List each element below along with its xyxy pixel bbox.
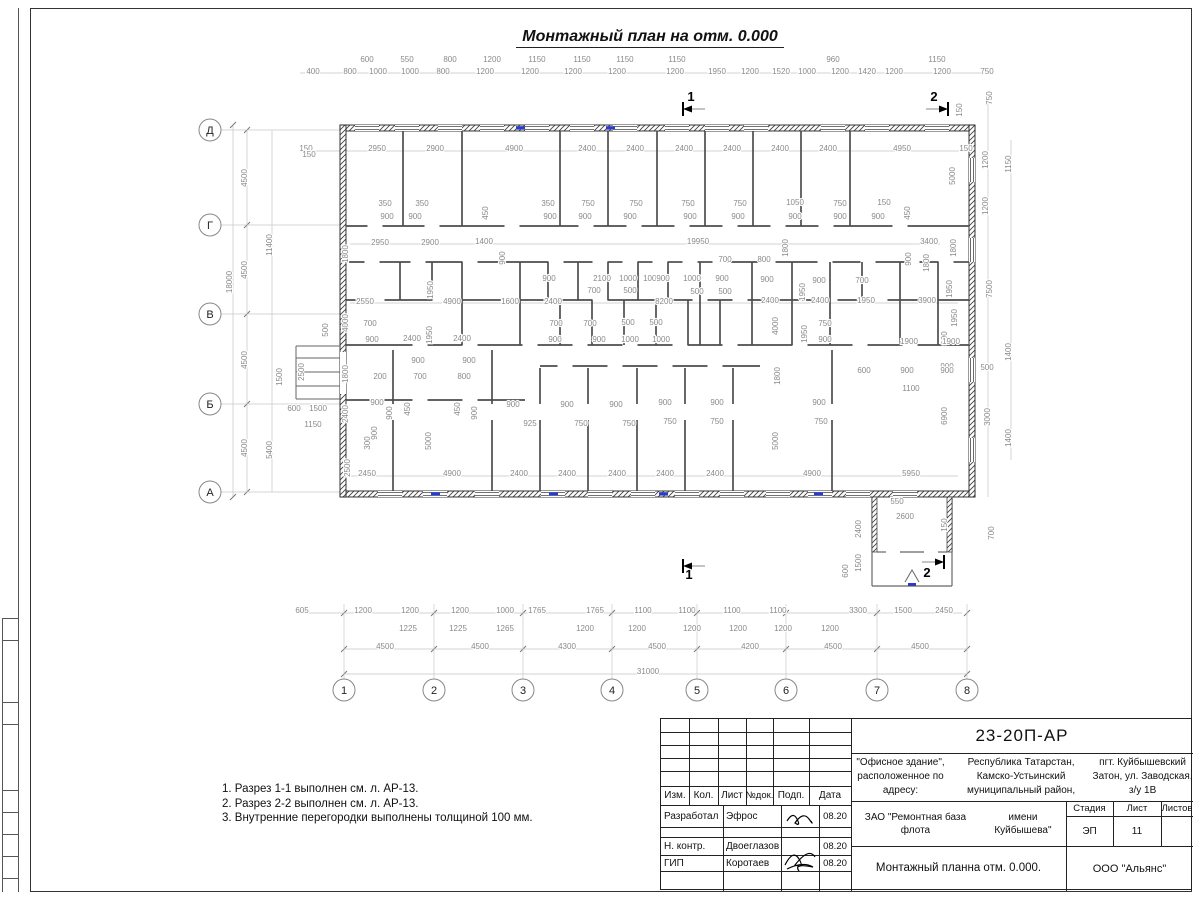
dim-label: 4900 [803,469,821,478]
dim-label: 800 [443,55,457,64]
dim-label: 1900 [900,337,918,346]
dim-label: 1765 [528,606,546,615]
axis-label: 6 [783,685,789,697]
dim-label: 3000 [983,408,992,426]
dim-label: 1800 [341,245,350,263]
dim-label: 900 [760,275,774,284]
axis-label: 1 [341,685,347,697]
dim-label: 900 [542,274,556,283]
dim-label: 2400 [453,334,471,343]
dim-label: 11400 [265,234,274,256]
section-mark-label: 1 [685,567,692,582]
dim-label: 750 [581,199,595,208]
section-mark-label: 1 [687,89,694,104]
dim-label: 1200 [933,67,951,76]
dim-label: 5000 [948,167,957,185]
dim-label: 1200 [729,624,747,633]
dim-label: 1150 [928,55,946,64]
notes: 1. Разрез 1-1 выполнен см. л. АР-13.2. Р… [222,782,533,826]
dim-label: 1800 [341,365,350,383]
dim-label: 4200 [741,642,759,651]
dim-label: 1000 [496,606,514,615]
dim-label: 900 [411,356,425,365]
axis-label: Д [206,125,214,137]
dim-label: 900 [683,212,697,221]
dim-label: 450 [403,402,412,416]
tb-col-0: Изм. [661,786,689,805]
dim-label: 2450 [358,469,376,478]
dim-label: 605 [295,606,309,615]
axis-label: А [206,487,214,499]
dim-label: 900 [658,398,672,407]
dim-label: 5000 [771,432,780,450]
dim-label: 4300 [558,642,576,651]
tb-sheets-label: Листов [1161,801,1193,816]
tb-role-1: Н. контр. [661,837,726,855]
dim-label: 200 [373,372,387,381]
dim-label: 1200 [451,606,469,615]
dim-label: 150 [955,103,964,117]
dim-label: 4500 [240,439,249,457]
dim-label: 2400 [656,469,674,478]
dim-label: 450 [903,206,912,220]
dim-label: 750 [681,199,695,208]
dim-label: 1900 [942,337,960,346]
dim-label: 2600 [896,512,914,521]
dim-label: 5950 [902,469,920,478]
dim-label: 350 [415,199,429,208]
dim-label: 1950 [426,281,435,299]
dim-label: 900 [560,400,574,409]
axis-label: 2 [431,685,437,697]
dim-label: 2400 [675,144,693,153]
dim-label: 19950 [687,237,710,246]
tb-role-0: Разработал [661,805,726,827]
dim-label: 5400 [265,441,274,459]
dim-label: 900 [578,212,592,221]
dim-label: 500 [980,363,994,372]
dim-label: 1050 [786,198,804,207]
dim-label: 4500 [911,642,929,651]
dim-label: 6900 [940,407,949,425]
dim-label: 700 [363,319,377,328]
dim-label: 1100 [634,606,652,615]
dim-label: 800 [343,67,357,76]
dim-label: 1500 [309,404,327,413]
dim-label: 1100 [902,384,920,393]
dim-label: 2400 [626,144,644,153]
dim-label: 150 [959,144,973,153]
dim-label: 2400 [854,520,863,538]
tb-date-2: 08.20 [819,855,851,871]
dim-label: 1200 [354,606,372,615]
dim-label: 1500 [894,606,912,615]
dim-label: 1100 [769,606,787,615]
dim-label: 1150 [1004,155,1013,173]
tb-sheet-value: 11 [1113,816,1161,846]
dim-label: 500 [621,318,635,327]
titleblock-line [661,827,851,828]
dim-label: 1950 [950,309,959,327]
dim-label: 1200 [981,197,990,215]
axis-label: 3 [520,685,526,697]
dim-label: 2400 [558,469,576,478]
dim-label: 1200 [683,624,701,633]
dim-label: 700 [549,319,563,328]
dim-label: 900 [623,212,637,221]
dim-label: 900 [833,212,847,221]
dim-label: 1150 [668,55,686,64]
dim-label: 1800 [781,239,790,257]
dim-label: 700 [855,276,869,285]
dim-label: 750 [833,199,847,208]
dim-label: 2400 [403,334,421,343]
dim-label: 900 [818,335,832,344]
dim-label: 1200 [576,624,594,633]
dim-label: 1200 [521,67,539,76]
dim-label: 2400 [706,469,724,478]
dim-label: 900 [365,335,379,344]
dim-label: 350 [541,199,555,208]
note-line: 1. Разрез 1-1 выполнен см. л. АР-13. [222,782,533,797]
dim-label: 1100 [678,606,696,615]
section-mark-label: 2 [930,89,937,104]
dim-label: 600 [360,55,374,64]
note-line: 2. Разрез 2-2 выполнен см. л. АР-13. [222,797,533,812]
dim-label: 4500 [471,642,489,651]
dim-label: 1950 [425,326,434,344]
tb-name-2: Коротаев [723,855,784,871]
dim-label: 900 [812,276,826,285]
dim-label: 2550 [356,297,374,306]
dim-label: 1000 [652,335,670,344]
dim-label: 700 [583,319,597,328]
dim-label: 960 [826,55,840,64]
dim-label: 800 [436,67,450,76]
dim-label: 1150 [616,55,634,64]
dim-label: 600 [857,366,871,375]
dim-label: 150 [940,518,949,532]
dim-label: 1000 [619,274,637,283]
dim-label: 4900 [443,297,461,306]
dim-label: 2400 [544,297,562,306]
dim-label: 600 [287,404,301,413]
tb-company: ООО "Альянс" [1066,846,1193,891]
dim-label: 800 [757,255,771,264]
dim-label: 750 [574,419,588,428]
axis-label: Г [207,220,213,232]
dim-label: 2900 [426,144,444,153]
dim-label: 450 [453,402,462,416]
dim-label: 900 [904,252,913,266]
dim-label: 500 [623,286,637,295]
dim-label: 4500 [240,169,249,187]
dim-label: 1200 [831,67,849,76]
dim-label: 900 [506,400,520,409]
dim-label: 900 [470,406,479,420]
section-mark-label: 2 [923,565,930,580]
tb-stage-value: ЭП [1066,816,1113,846]
dim-label: 500 [718,287,732,296]
dim-label: 1200 [741,67,759,76]
dim-label: 2400 [819,144,837,153]
dim-label: 1950 [945,280,954,298]
dim-label: 150 [877,198,891,207]
tb-drawing-name: Монтажный планна отм. 0.000. [851,846,1066,891]
dim-label: 2500 [297,363,306,381]
dim-label: 350 [378,199,392,208]
axis-label: 7 [874,685,880,697]
dim-label: 1950 [798,283,807,301]
dim-label: 2450 [935,606,953,615]
tb-doc: 23-20П-АР [851,719,1193,753]
dim-label: 750 [980,67,994,76]
dim-label: 31000 [637,667,660,676]
dim-label: 900 [548,335,562,344]
dim-label: 2400 [341,405,350,423]
dim-label: 900 [592,335,606,344]
dim-label: 1225 [449,624,467,633]
dim-label: 8200 [655,297,673,306]
dim-label: 2400 [761,296,779,305]
dim-label: 1225 [399,624,417,633]
dim-label: 4000 [341,314,350,332]
titleblock-line [661,871,851,872]
dim-label: 1000 [621,335,639,344]
axis-label: Б [206,399,213,411]
dim-label: 1000 [798,67,816,76]
dim-label: 900 [731,212,745,221]
dim-label: 750 [814,417,828,426]
dim-label: 2400 [608,469,626,478]
dim-label: 1000 [683,274,701,283]
dim-label: 750 [622,419,636,428]
tb-col-5: Дата [809,786,851,805]
dim-label: 900 [656,274,670,283]
dim-label: 1950 [708,67,726,76]
dim-label: 1200 [885,67,903,76]
dim-label: 4900 [443,469,461,478]
dim-label: 4500 [376,642,394,651]
dim-label: 3300 [849,606,867,615]
dim-label: 500 [321,323,330,337]
axis-lines [221,130,967,679]
dim-label: 750 [733,199,747,208]
dim-label: 900 [788,212,802,221]
dim-label: 925 [523,419,537,428]
dim-label: 700 [987,526,996,540]
dim-label: 4500 [240,351,249,369]
dim-label: 900 [408,212,422,221]
tb-col-3: №док. [746,786,773,805]
dim-label: 450 [481,206,490,220]
dim-label: 750 [818,319,832,328]
dim-label: 1765 [586,606,604,615]
title-block: Изм.Кол.Лист№док.Подп.ДатаРазработалЭфро… [660,718,1192,890]
dim-label: 2950 [371,238,389,247]
tb-sheets-value [1161,816,1193,846]
tb-date-1: 08.20 [819,837,851,855]
dim-label: 2100 [593,274,611,283]
dim-label: 2400 [578,144,596,153]
dim-label: 1150 [528,55,546,64]
dim-label: 5000 [424,432,433,450]
tb-col-2: Лист [718,786,746,805]
tb-sheet-label: Лист [1113,801,1161,816]
dim-label: 1150 [304,420,322,429]
dim-label: 1200 [401,606,419,615]
dim-label: 4950 [893,144,911,153]
dim-label: 1200 [774,624,792,633]
dim-label: 1500 [854,554,863,572]
tb-role-2: ГИП [661,855,726,871]
dim-label: 1200 [483,55,501,64]
dim-label: 2900 [421,238,439,247]
dim-label: 1800 [773,367,782,385]
dim-label: 1150 [573,55,591,64]
dim-label: 1200 [476,67,494,76]
tb-name-0: Эфрос [723,805,784,827]
dim-label: 1100 [723,606,741,615]
dim-label: 900 [462,356,476,365]
tb-name-1: Двоеглазов [723,837,784,855]
dim-label: 4500 [648,642,666,651]
dim-label: 1500 [275,368,284,386]
dim-label: 900 [940,366,954,375]
dim-label: 400 [306,67,320,76]
dim-label: 900 [380,212,394,221]
dim-label: 1200 [981,151,990,169]
axis-label: В [206,309,213,321]
dim-label: 700 [413,372,427,381]
dim-label: 1200 [666,67,684,76]
axis-label: 8 [964,685,970,697]
dim-label: 900 [710,398,724,407]
drawing-sheet: { "title": "Монтажный план на отм. 0.000… [0,0,1200,900]
dim-label: 800 [457,372,471,381]
tb-col-4: Подп. [773,786,809,805]
dim-label: 1200 [821,624,839,633]
dim-label: 1000 [401,67,419,76]
axis-label: 4 [609,685,615,697]
section-marks: 1212 [683,89,948,582]
dim-label: 1200 [608,67,626,76]
dim-label: 1265 [496,624,514,633]
tb-col-1: Кол. [689,786,718,805]
dim-label: 1420 [858,67,876,76]
dim-label: 1950 [800,325,809,343]
dim-label: 1520 [772,67,790,76]
tb-date-0: 08.20 [819,805,851,827]
tb-address: "Офисное здание", расположенное по адрес… [851,753,1193,801]
dim-label: 900 [812,398,826,407]
dim-label: 1000 [369,67,387,76]
dim-label: 750 [629,199,643,208]
dim-label: 2400 [510,469,528,478]
dim-label: 300 [363,436,372,450]
dim-label: 2950 [368,144,386,153]
dim-label: 900 [900,366,914,375]
dim-label: 700 [587,286,601,295]
dim-label: 4500 [824,642,842,651]
dim-label: 500 [649,318,663,327]
tb-client: ЗАО "Ремонтная база флотаимени Куйбышева… [851,801,1066,846]
dim-label: 1400 [1004,343,1013,361]
dim-label: 2500 [343,459,352,477]
dim-label: 150 [302,150,316,159]
dim-label: 900 [609,400,623,409]
dim-label: 3900 [918,296,936,305]
dim-label: 3400 [920,237,938,246]
dim-label: 1400 [1004,429,1013,447]
dim-label: 750 [663,417,677,426]
dim-label: 750 [710,417,724,426]
dim-label: 1200 [564,67,582,76]
dim-label: 2400 [723,144,741,153]
dim-label: 500 [690,287,704,296]
dim-label: 900 [385,406,394,420]
dim-label: 900 [370,398,384,407]
dim-label: 1800 [949,239,958,257]
dim-label: 900 [498,251,507,265]
dim-label: 750 [985,91,994,105]
dim-label: 2400 [811,296,829,305]
dim-label: 1800 [922,254,931,272]
note-line: 3. Внутренние перегородки выполнены толщ… [222,811,533,826]
dim-label: 1400 [475,237,493,246]
tb-stage-label: Стадия [1066,801,1113,816]
dim-label: 4000 [771,317,780,335]
dim-label: 550 [890,497,904,506]
dim-label: 550 [400,55,414,64]
dim-label: 18000 [225,270,234,293]
dim-label: 900 [715,274,729,283]
dim-label: 4500 [240,261,249,279]
dim-label: 1600 [501,297,519,306]
dim-label: 700 [718,255,732,264]
dim-label: 7500 [985,280,994,298]
dim-label: 1200 [628,624,646,633]
dim-label: 1950 [857,296,875,305]
dim-label: 900 [871,212,885,221]
dim-label: 2400 [771,144,789,153]
dim-label: 4900 [505,144,523,153]
dim-label: 600 [841,564,850,578]
dim-label: 900 [543,212,557,221]
axis-label: 5 [694,685,700,697]
